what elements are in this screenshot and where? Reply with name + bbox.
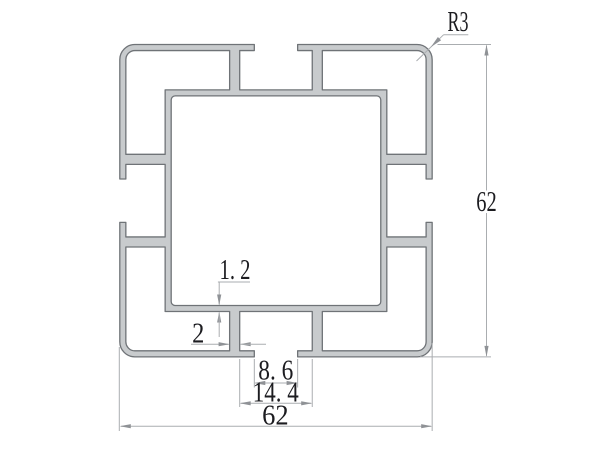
svg-text:14. 4: 14. 4 xyxy=(253,378,299,409)
svg-text:62: 62 xyxy=(476,187,497,218)
svg-text:R3: R3 xyxy=(448,7,469,38)
svg-text:2: 2 xyxy=(192,318,204,349)
svg-text:1. 2: 1. 2 xyxy=(220,255,251,286)
